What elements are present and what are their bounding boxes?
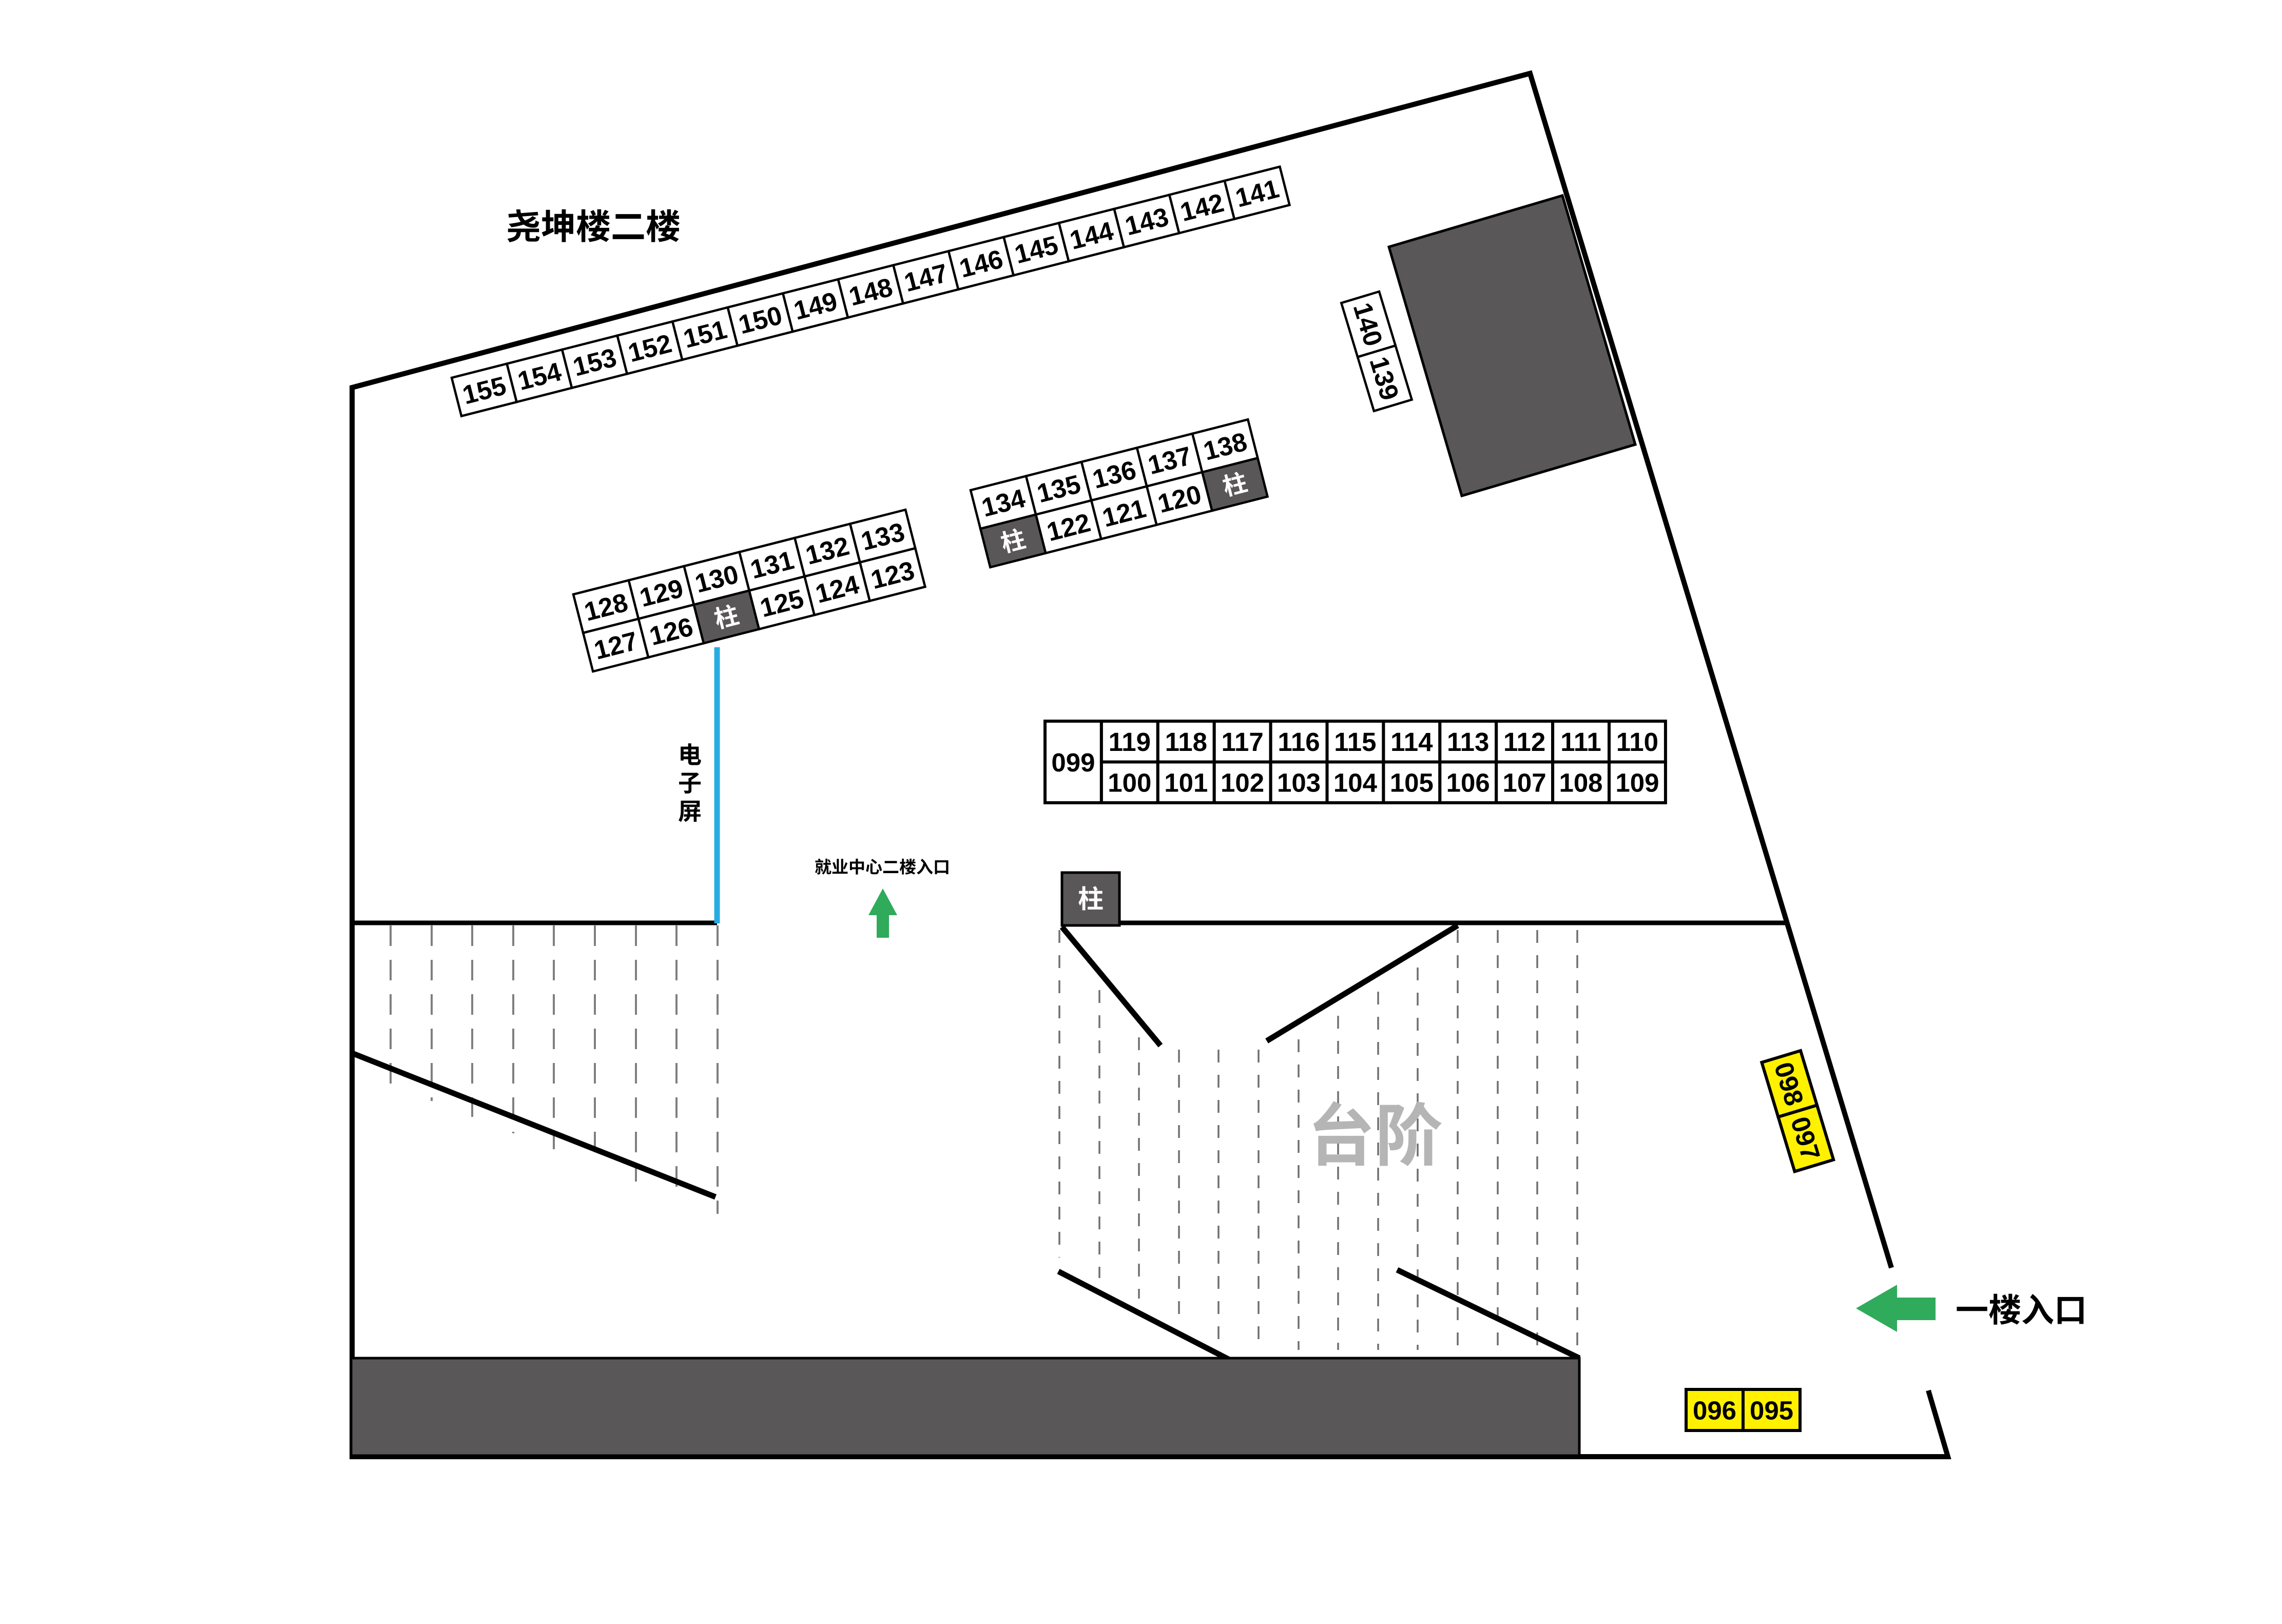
svg-text:100: 100 <box>1108 768 1151 798</box>
svg-text:119: 119 <box>1109 727 1151 757</box>
svg-text:114: 114 <box>1390 727 1433 757</box>
svg-text:107: 107 <box>1503 768 1546 798</box>
svg-text:111: 111 <box>1560 727 1601 757</box>
svg-text:112: 112 <box>1503 727 1545 757</box>
svg-text:108: 108 <box>1559 768 1602 798</box>
svg-text:103: 103 <box>1277 768 1321 798</box>
svg-text:104: 104 <box>1333 768 1378 798</box>
svg-text:099: 099 <box>1051 748 1095 777</box>
svg-text:096: 096 <box>1693 1396 1736 1425</box>
svg-text:105: 105 <box>1390 768 1434 798</box>
svg-text:110: 110 <box>1616 727 1658 757</box>
svg-text:116: 116 <box>1278 727 1320 757</box>
svg-text:115: 115 <box>1334 727 1376 757</box>
svg-text:095: 095 <box>1750 1396 1793 1425</box>
svg-text:118: 118 <box>1165 727 1207 757</box>
svg-text:106: 106 <box>1446 768 1490 798</box>
svg-text:109: 109 <box>1615 768 1659 798</box>
svg-text:113: 113 <box>1447 727 1489 757</box>
svg-text:117: 117 <box>1221 727 1263 757</box>
svg-text:102: 102 <box>1221 768 1264 798</box>
svg-text:101: 101 <box>1164 768 1208 798</box>
